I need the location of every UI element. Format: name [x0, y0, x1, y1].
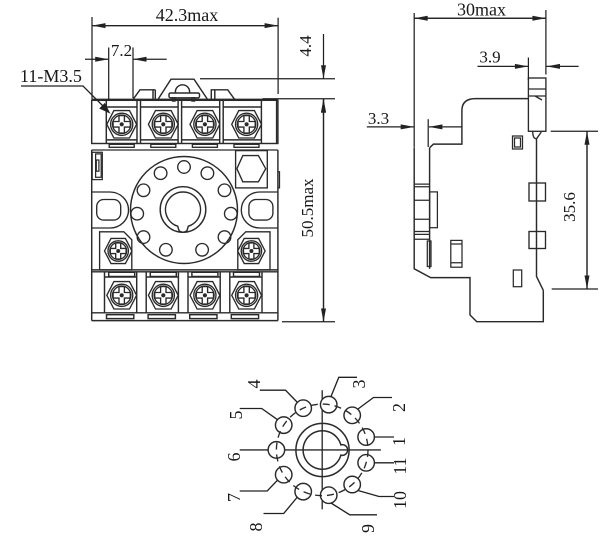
svg-text:30max: 30max	[457, 0, 506, 20]
svg-text:5: 5	[226, 411, 246, 420]
svg-text:2: 2	[389, 403, 409, 412]
svg-text:3: 3	[349, 380, 369, 389]
svg-text:35.6: 35.6	[560, 192, 579, 222]
svg-text:6: 6	[224, 453, 244, 462]
svg-text:8: 8	[246, 523, 266, 532]
svg-text:9: 9	[358, 524, 378, 533]
svg-text:7.2: 7.2	[111, 41, 132, 60]
svg-text:4: 4	[244, 380, 264, 389]
svg-text:3.9: 3.9	[479, 48, 500, 67]
svg-text:10: 10	[390, 491, 410, 509]
svg-text:1: 1	[389, 437, 409, 446]
svg-text:11: 11	[390, 457, 410, 474]
svg-text:7: 7	[224, 493, 244, 502]
svg-text:3.3: 3.3	[368, 109, 389, 128]
svg-text:42.3max: 42.3max	[156, 5, 219, 25]
svg-text:50.5max: 50.5max	[298, 178, 317, 238]
svg-text:11-M3.5: 11-M3.5	[20, 66, 82, 86]
svg-text:4.4: 4.4	[296, 35, 315, 57]
